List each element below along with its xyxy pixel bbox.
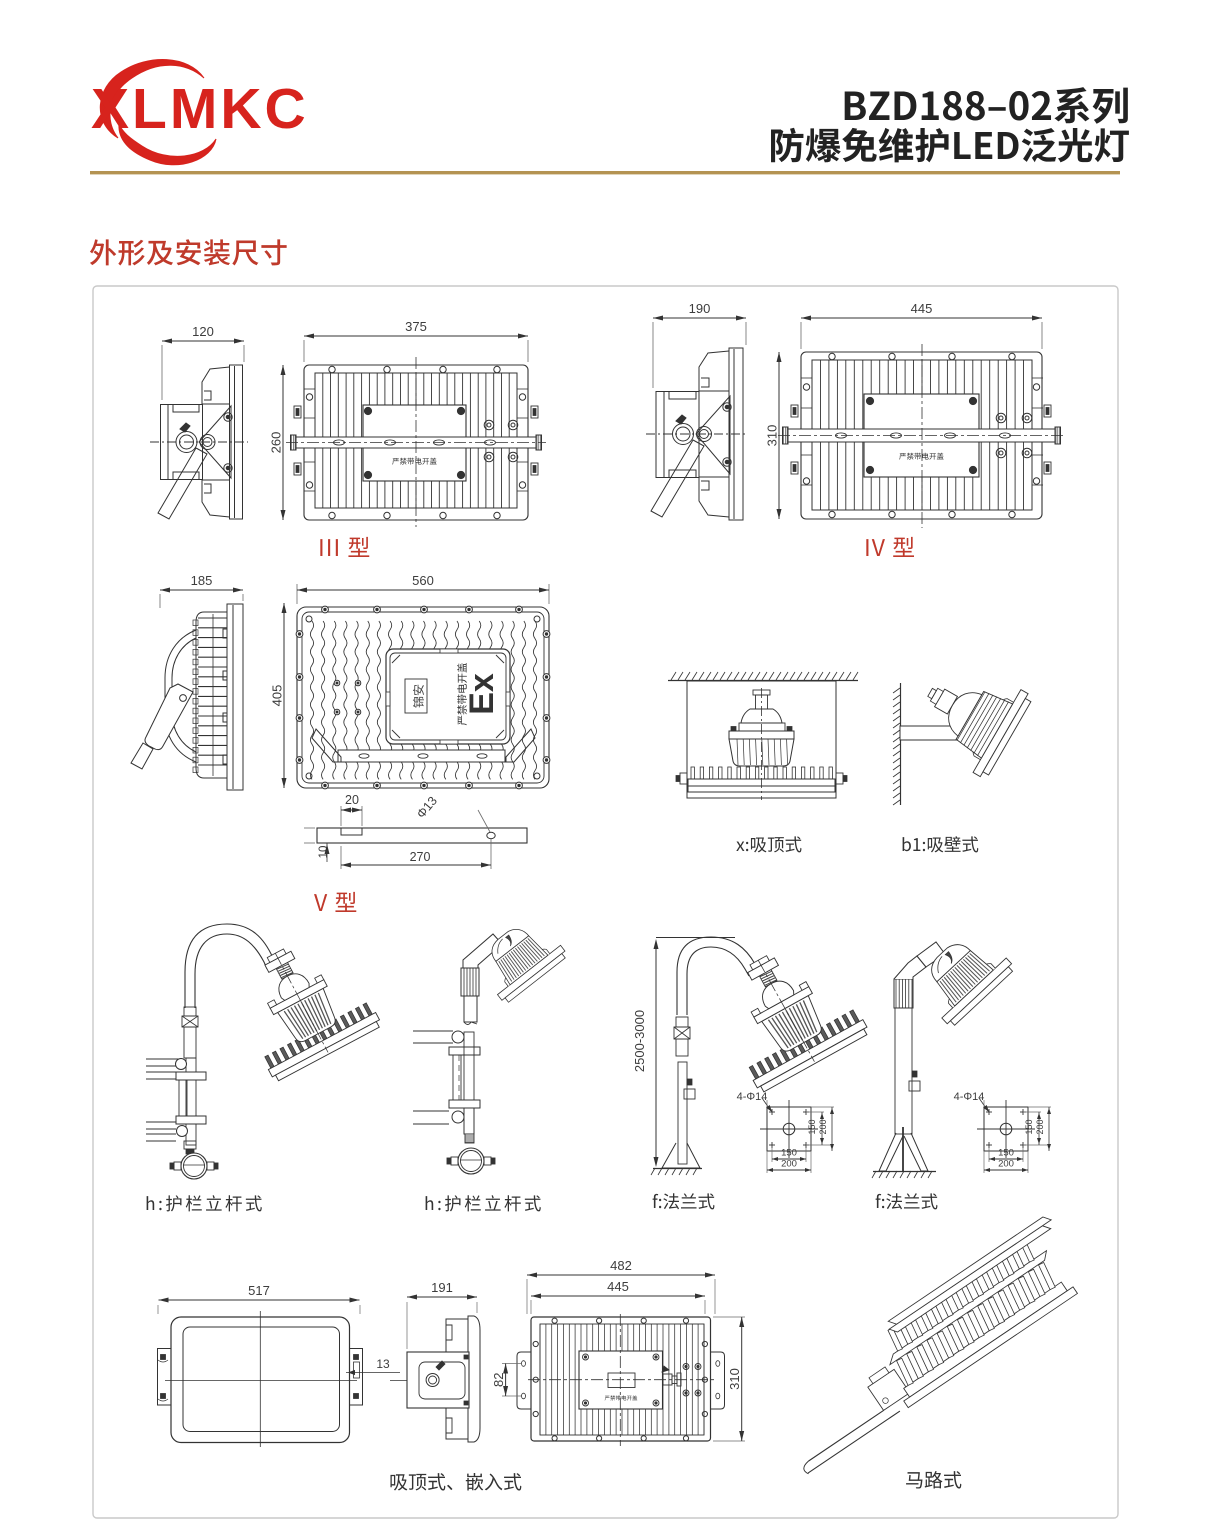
svg-text:260: 260	[269, 432, 284, 454]
svg-text:445: 445	[607, 1279, 629, 1294]
svg-text:20: 20	[345, 793, 359, 807]
svg-text:270: 270	[410, 850, 431, 864]
svg-text:482: 482	[610, 1258, 632, 1273]
svg-text:200: 200	[781, 1159, 797, 1170]
svg-text:4-Φ14: 4-Φ14	[737, 1091, 768, 1103]
svg-text:185: 185	[191, 573, 213, 588]
svg-text:375: 375	[405, 319, 427, 334]
svg-text:150: 150	[807, 1119, 817, 1134]
svg-text:560: 560	[412, 573, 434, 588]
svg-text:XLMKC: XLMKC	[91, 77, 309, 141]
svg-text:13: 13	[376, 1357, 390, 1371]
svg-text:150: 150	[998, 1148, 1014, 1159]
svg-text:150: 150	[781, 1148, 797, 1159]
svg-text:517: 517	[248, 1283, 270, 1298]
svg-text:120: 120	[192, 324, 214, 339]
svg-text:150: 150	[1024, 1119, 1034, 1134]
svg-text:310: 310	[727, 1368, 742, 1390]
svg-text:Ex: Ex	[463, 673, 501, 715]
svg-text:200: 200	[818, 1119, 828, 1134]
svg-text:190: 190	[689, 301, 711, 316]
svg-text:82: 82	[491, 1373, 506, 1387]
svg-text:191: 191	[431, 1280, 453, 1295]
svg-text:Φ13: Φ13	[414, 794, 440, 821]
svg-text:4-Φ14: 4-Φ14	[954, 1091, 985, 1103]
svg-text:445: 445	[911, 301, 933, 316]
svg-text:310: 310	[765, 425, 780, 447]
svg-text:200: 200	[1035, 1119, 1045, 1134]
svg-text:200: 200	[998, 1159, 1014, 1170]
svg-text:2500-3000: 2500-3000	[632, 1010, 647, 1072]
svg-text:405: 405	[270, 685, 285, 707]
